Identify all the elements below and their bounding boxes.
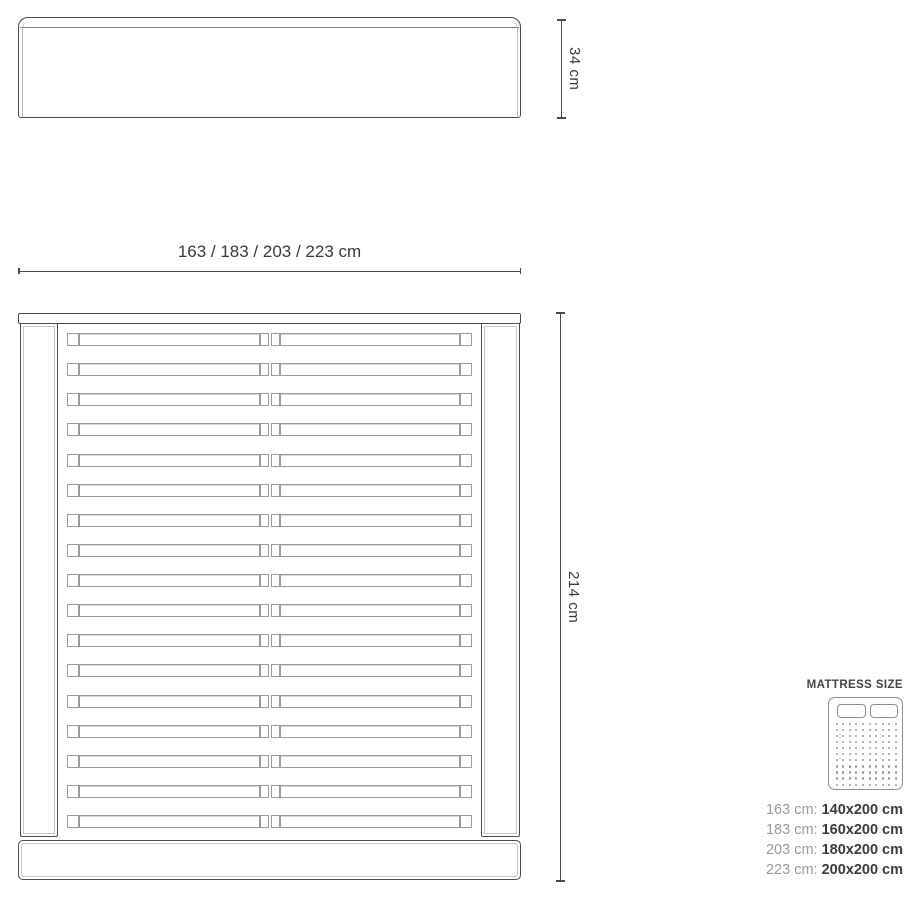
slat-row: [67, 333, 472, 346]
slat-center-cap: [271, 423, 280, 436]
mattress-size-row: 163 cm:140x200 cm: [700, 800, 903, 820]
slat-center-cap: [271, 333, 280, 346]
slat-bar-left: [79, 574, 260, 587]
headboard-front-view: [18, 17, 521, 118]
tufting-dot: [895, 735, 897, 737]
mattress-size-list: 163 cm:140x200 cm183 cm:160x200 cm203 cm…: [700, 800, 903, 880]
slat-bar-left: [79, 755, 260, 768]
slat-bar-right: [280, 815, 461, 828]
slat-bar-right: [280, 454, 461, 467]
tufting-dot: [855, 777, 857, 779]
tufting-dot: [862, 784, 864, 786]
slat-center-cap: [271, 574, 280, 587]
tufting-dot: [849, 771, 851, 773]
slat-end-cap: [67, 815, 79, 828]
tufting-dot: [855, 723, 857, 725]
tufting-dot: [882, 753, 884, 755]
tufting-dot: [842, 753, 844, 755]
slat-center-cap: [260, 363, 269, 376]
mattress-size-value: 140x200 cm: [822, 802, 903, 818]
tufting-dot: [875, 759, 877, 761]
slat-center-cap: [260, 785, 269, 798]
tufting-dot: [849, 735, 851, 737]
tufting-dot: [869, 771, 871, 773]
pillow-left-icon: [837, 704, 866, 718]
tufting-dot: [869, 765, 871, 767]
slat-center-cap: [260, 664, 269, 677]
slat-center-cap: [260, 423, 269, 436]
slat-center-cap: [271, 604, 280, 617]
tufting-dot: [882, 741, 884, 743]
dimension-line-headboard-height: [561, 20, 562, 118]
slat-end-cap: [67, 604, 79, 617]
dimension-line-frame-length: [560, 313, 561, 881]
slat-bar-right: [280, 363, 461, 376]
tufting-dot: [836, 753, 838, 755]
slat-bar-left: [79, 514, 260, 527]
tufting-dot: [862, 735, 864, 737]
tufting-dot: [842, 747, 844, 749]
headboard-inner-edges: [22, 21, 518, 118]
tufting-dot: [855, 765, 857, 767]
slat-end-cap: [460, 514, 472, 527]
headboard-top-view-rail: [18, 313, 521, 324]
slat-row: [67, 604, 472, 617]
mattress-size-value: 180x200 cm: [822, 842, 903, 858]
slat-row: [67, 574, 472, 587]
tufting-dot: [888, 723, 890, 725]
tufting-dot: [849, 759, 851, 761]
tufting-dot: [869, 729, 871, 731]
mattress-size-value: 160x200 cm: [822, 822, 903, 838]
slat-end-cap: [67, 785, 79, 798]
slat-bar-left: [79, 333, 260, 346]
slat-bar-right: [280, 574, 461, 587]
slat-center-cap: [271, 544, 280, 557]
tufting-dot: [882, 765, 884, 767]
mattress-size-row: 223 cm:200x200 cm: [700, 860, 903, 880]
tufting-dot: [875, 784, 877, 786]
slat-end-cap: [67, 454, 79, 467]
slat-center-cap: [260, 484, 269, 497]
slat-bar-right: [280, 634, 461, 647]
tufting-dot: [855, 735, 857, 737]
slat-end-cap: [460, 544, 472, 557]
slat-bar-left: [79, 423, 260, 436]
slat-row: [67, 514, 472, 527]
slat-end-cap: [460, 393, 472, 406]
tufting-dot: [895, 784, 897, 786]
tufting-dot: [875, 723, 877, 725]
slat-row: [67, 454, 472, 467]
slat-center-cap: [271, 484, 280, 497]
tufting-dot: [882, 747, 884, 749]
tufting-dot: [882, 735, 884, 737]
slat-bar-right: [280, 484, 461, 497]
slat-center-cap: [271, 664, 280, 677]
mattress-size-title: MATTRESS SIZE: [760, 679, 903, 691]
slat-end-cap: [67, 333, 79, 346]
slat-center-cap: [260, 454, 269, 467]
tufting-dot: [869, 747, 871, 749]
slat-center-cap: [271, 393, 280, 406]
tufting-dot: [836, 735, 838, 737]
slat-row: [67, 695, 472, 708]
slat-end-cap: [460, 634, 472, 647]
tufting-dot: [855, 759, 857, 761]
slat-end-cap: [460, 423, 472, 436]
slat-end-cap: [460, 454, 472, 467]
tufting-dot: [862, 741, 864, 743]
tufting-dot: [875, 735, 877, 737]
frame-size-label: 163 cm:: [766, 802, 818, 818]
slat-end-cap: [460, 333, 472, 346]
slat-row: [67, 544, 472, 557]
tufting-dot: [895, 777, 897, 779]
slat-row: [67, 815, 472, 828]
tufting-dot: [882, 771, 884, 773]
slat-end-cap: [67, 664, 79, 677]
tufting-dot: [875, 729, 877, 731]
tufting-dot: [855, 753, 857, 755]
tufting-dot: [849, 747, 851, 749]
slat-row: [67, 393, 472, 406]
tufting-dot: [836, 729, 838, 731]
slat-bar-left: [79, 544, 260, 557]
bed-dimension-diagram: 34 cm 163 / 183 / 203 / 223 cm 214 cm MA…: [0, 0, 920, 900]
tufting-dot: [869, 759, 871, 761]
tufting-dot: [888, 771, 890, 773]
slat-bar-left: [79, 604, 260, 617]
slat-center-cap: [260, 755, 269, 768]
slat-end-cap: [460, 725, 472, 738]
tufting-dot: [875, 771, 877, 773]
tufting-dot: [869, 735, 871, 737]
tufting-dot: [849, 741, 851, 743]
slat-end-cap: [67, 544, 79, 557]
tufting-dot: [882, 777, 884, 779]
footboard-top-view: [18, 840, 521, 880]
tufting-dot: [849, 777, 851, 779]
tufting-dot: [842, 723, 844, 725]
slat-center-cap: [271, 514, 280, 527]
frame-size-label: 223 cm:: [766, 862, 818, 878]
tufting-dot: [882, 784, 884, 786]
slat-center-cap: [260, 634, 269, 647]
tufting-dot: [882, 723, 884, 725]
frame-size-label: 183 cm:: [766, 822, 818, 838]
slat-center-cap: [271, 363, 280, 376]
dimension-tick: [556, 312, 565, 314]
slat-end-cap: [460, 785, 472, 798]
tufting-dot: [836, 723, 838, 725]
slat-end-cap: [460, 574, 472, 587]
tufting-dot: [855, 729, 857, 731]
tufting-dot: [882, 729, 884, 731]
tufting-dot: [888, 741, 890, 743]
tufting-dot: [855, 784, 857, 786]
tufting-dot: [888, 747, 890, 749]
tufting-dot: [849, 765, 851, 767]
tufting-dot: [842, 735, 844, 737]
slat-end-cap: [67, 755, 79, 768]
slat-end-cap: [460, 363, 472, 376]
slat-bar-right: [280, 544, 461, 557]
slat-end-cap: [460, 815, 472, 828]
tufting-dot: [888, 735, 890, 737]
slat-bar-right: [280, 755, 461, 768]
tufting-dot: [849, 753, 851, 755]
tufting-dot: [875, 741, 877, 743]
slat-end-cap: [67, 725, 79, 738]
slat-bar-right: [280, 423, 461, 436]
tufting-dot: [869, 784, 871, 786]
slat-bar-left: [79, 454, 260, 467]
tufting-dot: [895, 759, 897, 761]
slat-row: [67, 664, 472, 677]
slat-end-cap: [460, 755, 472, 768]
tufting-dot: [836, 747, 838, 749]
tufting-dot: [888, 753, 890, 755]
left-rail-inner-line: [23, 326, 55, 834]
slat-center-cap: [260, 574, 269, 587]
slat-bar-left: [79, 393, 260, 406]
headboard-height-label: 34 cm: [566, 20, 583, 118]
footboard-inner-line: [21, 843, 518, 877]
tufting-dot: [836, 741, 838, 743]
dimension-tick: [557, 19, 566, 21]
tufting-dot: [888, 777, 890, 779]
tufting-dot: [895, 741, 897, 743]
slat-end-cap: [67, 634, 79, 647]
slat-bar-left: [79, 815, 260, 828]
tufting-dot: [862, 753, 864, 755]
tufting-dot: [836, 777, 838, 779]
tufting-dot: [869, 777, 871, 779]
slat-bar-left: [79, 725, 260, 738]
slat-bar-right: [280, 725, 461, 738]
slat-center-cap: [260, 514, 269, 527]
slat-end-cap: [460, 695, 472, 708]
slat-bar-right: [280, 514, 461, 527]
right-side-rail: [481, 323, 520, 837]
tufting-dot: [862, 771, 864, 773]
tufting-dot: [869, 741, 871, 743]
slat-bar-left: [79, 634, 260, 647]
slat-row: [67, 484, 472, 497]
slat-row: [67, 634, 472, 647]
dimension-tick: [557, 117, 566, 119]
slat-bar-right: [280, 604, 461, 617]
slat-center-cap: [260, 725, 269, 738]
slat-bar-left: [79, 785, 260, 798]
tufting-dot: [849, 784, 851, 786]
tufting-dot: [895, 771, 897, 773]
slat-bar-right: [280, 393, 461, 406]
slat-center-cap: [271, 695, 280, 708]
tufting-dot: [875, 747, 877, 749]
tufting-dot: [842, 741, 844, 743]
slat-center-cap: [271, 815, 280, 828]
tufting-dot: [895, 765, 897, 767]
slat-center-cap: [271, 454, 280, 467]
tufting-dot: [869, 753, 871, 755]
slat-end-cap: [67, 423, 79, 436]
mattress-size-value: 200x200 cm: [822, 862, 903, 878]
mattress-size-row: 203 cm:180x200 cm: [700, 840, 903, 860]
dimension-tick: [520, 268, 522, 274]
tufting-dot: [842, 765, 844, 767]
frame-size-label: 203 cm:: [766, 842, 818, 858]
slat-bar-right: [280, 785, 461, 798]
tufting-dot: [888, 729, 890, 731]
slat-end-cap: [460, 664, 472, 677]
frame-length-label: 214 cm: [565, 313, 582, 881]
slat-row: [67, 423, 472, 436]
tufting-dot: [855, 747, 857, 749]
slat-bar-left: [79, 363, 260, 376]
tufting-dot: [895, 723, 897, 725]
tufting-dot: [862, 765, 864, 767]
slat-end-cap: [67, 695, 79, 708]
tufting-dot: [842, 784, 844, 786]
slat-row: [67, 785, 472, 798]
slat-end-cap: [460, 604, 472, 617]
slat-center-cap: [271, 785, 280, 798]
slat-center-cap: [260, 393, 269, 406]
tufting-dot: [862, 777, 864, 779]
pillow-right-icon: [870, 704, 898, 718]
tufting-dot: [849, 729, 851, 731]
slat-end-cap: [67, 363, 79, 376]
double-mattress-icon: [828, 697, 903, 790]
tufting-dot: [842, 759, 844, 761]
tufting-dot: [888, 765, 890, 767]
slat-bar-left: [79, 484, 260, 497]
right-rail-inner-line: [484, 326, 517, 834]
tufting-dot: [849, 723, 851, 725]
dimension-line-frame-width: [18, 271, 521, 272]
tufting-dot: [862, 723, 864, 725]
tufting-dot: [875, 765, 877, 767]
tufting-dot: [895, 747, 897, 749]
slat-end-cap: [67, 393, 79, 406]
slat-end-cap: [67, 484, 79, 497]
slat-bar-left: [79, 695, 260, 708]
tufting-dot: [882, 759, 884, 761]
slat-row: [67, 755, 472, 768]
dimension-tick: [18, 268, 20, 274]
slat-center-cap: [271, 725, 280, 738]
slat-bar-left: [79, 664, 260, 677]
tufting-dot: [895, 753, 897, 755]
tufting-dot: [875, 777, 877, 779]
slat-center-cap: [260, 544, 269, 557]
tufting-dot: [836, 765, 838, 767]
tufting-dot: [836, 771, 838, 773]
slat-bar-right: [280, 333, 461, 346]
slat-bar-right: [280, 695, 461, 708]
slat-bar-right: [280, 664, 461, 677]
slat-end-cap: [460, 484, 472, 497]
tufting-dot: [888, 784, 890, 786]
tufting-dot: [836, 759, 838, 761]
frame-width-label: 163 / 183 / 203 / 223 cm: [18, 242, 521, 262]
slat-center-cap: [260, 695, 269, 708]
tufting-dot: [869, 723, 871, 725]
left-side-rail: [20, 323, 58, 837]
tufting-dot: [895, 729, 897, 731]
dimension-tick: [556, 880, 565, 882]
tufting-dot: [855, 771, 857, 773]
tufting-dot: [836, 784, 838, 786]
slat-center-cap: [271, 634, 280, 647]
mattress-size-row: 183 cm:160x200 cm: [700, 820, 903, 840]
slat-center-cap: [271, 755, 280, 768]
slat-row: [67, 725, 472, 738]
tufting-dot: [842, 777, 844, 779]
tufting-dot: [862, 729, 864, 731]
slat-row: [67, 363, 472, 376]
slat-center-cap: [260, 333, 269, 346]
tufting-dot: [842, 729, 844, 731]
slat-center-cap: [260, 604, 269, 617]
tufting-dot: [855, 741, 857, 743]
tufting-dot: [862, 747, 864, 749]
tufting-dot: [862, 759, 864, 761]
slat-center-cap: [260, 815, 269, 828]
slats-area: [67, 333, 472, 830]
tufting-dot: [888, 759, 890, 761]
slat-end-cap: [67, 514, 79, 527]
slat-end-cap: [67, 574, 79, 587]
tufting-dot: [842, 771, 844, 773]
tufting-dot: [875, 753, 877, 755]
